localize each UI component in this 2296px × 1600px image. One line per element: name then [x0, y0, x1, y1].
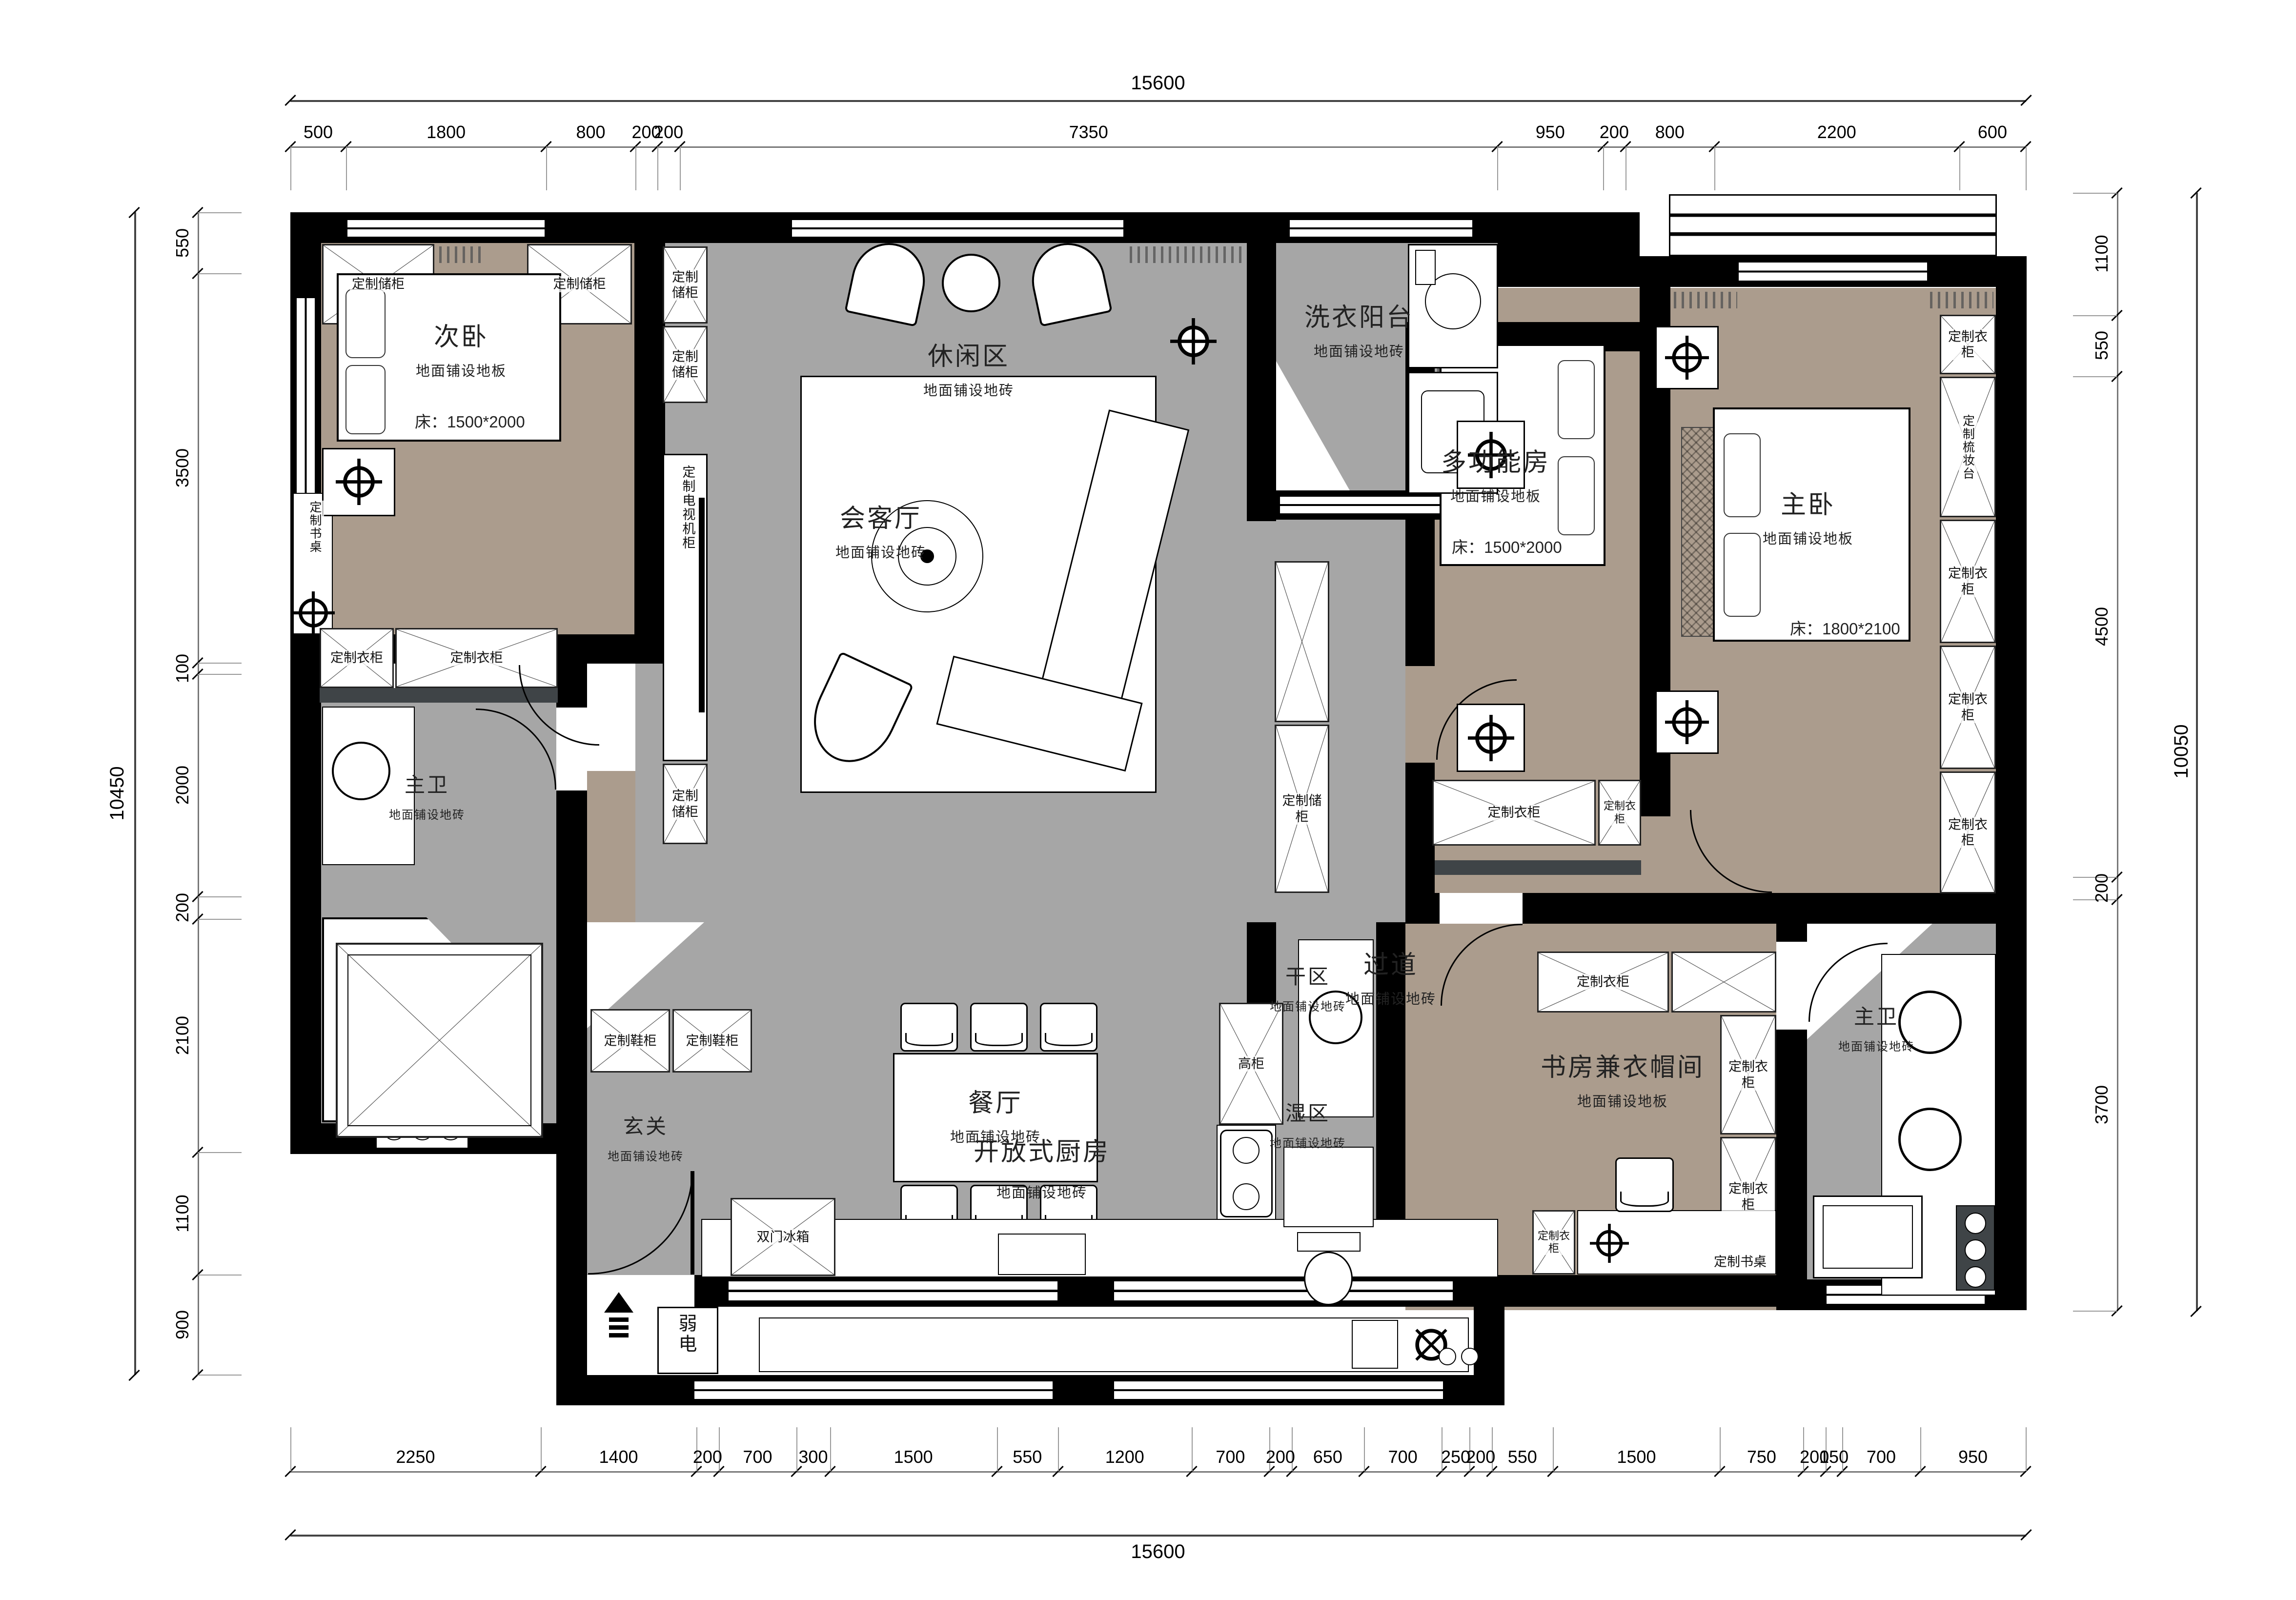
- cabinet-label: 定制鞋柜: [684, 1033, 741, 1049]
- cabinet-label: 定制衣柜: [1941, 691, 1994, 723]
- cabinet-label: 定制储柜: [551, 276, 608, 292]
- dim-total-line-left: [134, 212, 136, 1375]
- dining-chair: [970, 1003, 1028, 1052]
- dim-label: 800: [1655, 122, 1685, 142]
- wall: [1247, 212, 1276, 521]
- entry-arrow-icon: [604, 1292, 633, 1313]
- dim-label: 1200: [1105, 1447, 1144, 1467]
- dim-extension: [635, 146, 636, 190]
- dim-extension: [1920, 1427, 1921, 1471]
- bed-size-note: 床：1500*2000: [1452, 534, 1562, 558]
- crosshair-icon: [1665, 336, 1709, 380]
- cabinet-storage: 定制储柜: [663, 246, 708, 324]
- entry-arrow-bar: [609, 1333, 629, 1337]
- dim-label: 700: [1216, 1447, 1245, 1467]
- dim-extension: [1720, 1427, 1721, 1471]
- cabinet-shoe: 定制鞋柜: [590, 1009, 670, 1073]
- door-gap: [1776, 942, 1807, 1030]
- bathtub-inner: [1823, 1205, 1913, 1269]
- dim-extension: [997, 1427, 998, 1471]
- dim-label: 650: [1313, 1447, 1342, 1467]
- dim-label: 2100: [172, 1016, 193, 1055]
- dim-extension: [796, 1427, 797, 1471]
- crosshair-icon: [1170, 318, 1217, 365]
- dim-extension: [1714, 146, 1715, 190]
- door-gap: [1440, 893, 1523, 924]
- dim-label: 500: [304, 122, 333, 142]
- burner: [1965, 1213, 1986, 1234]
- dim-label: 200: [1466, 1447, 1495, 1467]
- dim-extension: [1625, 146, 1626, 190]
- toilet-tank: [1297, 1232, 1361, 1252]
- cabinet-label: 定制梳妆台: [1959, 414, 1977, 480]
- dim-label: 200: [1266, 1447, 1295, 1467]
- dim-label: 1100: [2092, 235, 2112, 273]
- bath-right-sink: [1898, 1108, 1962, 1171]
- dim-extension: [1603, 146, 1604, 190]
- room-label-weak-current: 弱电: [672, 1314, 699, 1355]
- dining-chair: [1040, 1003, 1097, 1052]
- room-label-dining: 餐厅 地面铺设地砖: [920, 1082, 1071, 1146]
- window: [295, 297, 316, 502]
- dim-label: 200: [2092, 873, 2112, 903]
- dim-label: 200: [654, 122, 683, 142]
- crosshair-glyph: [292, 591, 335, 634]
- cabinet-wardrobe: 定制衣柜: [1598, 780, 1641, 846]
- elevator-inner: [347, 954, 531, 1126]
- crosshair-glyph: [1468, 715, 1514, 761]
- dim-total-right: 10050: [2171, 724, 2193, 778]
- dim-label: 3500: [172, 448, 193, 487]
- dim-extension: [830, 1427, 831, 1471]
- dim-label: 2250: [396, 1447, 435, 1467]
- dim-line: [290, 146, 2026, 148]
- dim-label: 950: [1536, 122, 1565, 142]
- dim-label: 750: [1747, 1447, 1776, 1467]
- cabinet-label: 定制电视机柜: [678, 465, 697, 550]
- dim-extension: [1497, 146, 1498, 190]
- cabinet-label: 定制衣柜: [448, 650, 505, 666]
- dim-extension: [2073, 315, 2117, 316]
- floor-plan-page: { "dimensions": { "top": {"total": "1560…: [0, 0, 2296, 1600]
- cabinet-label: 双门冰箱: [755, 1229, 812, 1245]
- radiator: [1674, 292, 1737, 308]
- room-label-multi: 多功能房 地面铺设地板: [1405, 442, 1586, 506]
- dim-extension: [290, 146, 291, 190]
- dim-extension: [2073, 376, 2117, 377]
- cabinet-shoe: 定制鞋柜: [672, 1009, 752, 1073]
- dim-label: 2000: [172, 766, 193, 805]
- tv-screen: [699, 498, 705, 712]
- side-table: [942, 254, 1000, 312]
- desk-chair: [1615, 1157, 1674, 1212]
- dim-extension: [198, 1375, 242, 1376]
- cabinet-label: 定制储柜: [664, 269, 706, 301]
- dim-label: 900: [172, 1310, 193, 1339]
- kitchen-sink-cabinet: [998, 1234, 1086, 1275]
- cabinet-label: 定制衣柜: [1575, 974, 1631, 990]
- dim-extension: [2026, 146, 2027, 190]
- sill: [320, 688, 558, 703]
- burner: [1965, 1266, 1986, 1288]
- dim-label: 550: [1508, 1447, 1537, 1467]
- dim-extension: [541, 1427, 542, 1471]
- cabinet-label: 定制衣柜: [1941, 817, 1994, 849]
- window: [346, 219, 546, 238]
- bed-size-note: 床：1500*2000: [415, 409, 525, 432]
- cabinet-storage: [1275, 561, 1329, 722]
- entry-arrow-bar: [609, 1325, 629, 1330]
- dim-label: 7350: [1069, 122, 1108, 142]
- cabinet-wardrobe: 定制衣柜: [1940, 771, 1996, 893]
- cabinet-wardrobe: 定制衣柜: [1940, 646, 1996, 769]
- burner: [1233, 1183, 1260, 1210]
- entry-arrow-bar: [609, 1317, 629, 1322]
- burner: [1233, 1137, 1260, 1164]
- dim-label: 4500: [2092, 607, 2112, 646]
- wall: [556, 1154, 587, 1405]
- dim-label: 150: [1819, 1447, 1849, 1467]
- crosshair-icon: [1665, 700, 1709, 744]
- shower-tray: [1283, 1147, 1374, 1227]
- wall: [1498, 212, 1640, 287]
- dim-label: 800: [576, 122, 605, 142]
- room-label-master: 主卧 地面铺设地板: [1718, 484, 1898, 548]
- dim-label: 200: [172, 893, 193, 922]
- dim-extension: [1553, 1427, 1554, 1471]
- dim-label: 100: [172, 654, 193, 683]
- faucet-dot: [1439, 1348, 1456, 1365]
- wall: [634, 212, 665, 664]
- dim-label: 300: [798, 1447, 828, 1467]
- balcony-cabinet: [1352, 1320, 1398, 1369]
- room-label-wet-zone: 湿区 地面铺设地砖: [1259, 1097, 1357, 1151]
- room-label-leisure: 休闲区 地面铺设地砖: [883, 336, 1054, 400]
- crosshair-icon: [1468, 715, 1514, 761]
- dim-extension: [198, 663, 242, 664]
- dim-label: 700: [1388, 1447, 1418, 1467]
- dim-label: 700: [743, 1447, 772, 1467]
- room-label-dry-zone: 干区 地面铺设地砖: [1259, 960, 1357, 1014]
- dim-label: 600: [1978, 122, 2007, 142]
- window: [1288, 219, 1474, 238]
- dim-total-line-top: [290, 100, 2026, 102]
- cabinet-label: 高柜: [1236, 1056, 1266, 1072]
- room-label-living: 会客厅 地面铺设地砖: [793, 498, 969, 562]
- crosshair-glyph: [1590, 1224, 1629, 1263]
- dim-extension: [2073, 1311, 2117, 1312]
- window: [727, 1280, 1059, 1302]
- cabinet-wardrobe: 定制衣柜: [1532, 1210, 1575, 1275]
- dim-extension: [198, 273, 242, 274]
- dim-line: [290, 1471, 2026, 1473]
- room-label-bath-right: 主卫 地面铺设地砖: [1806, 1000, 1947, 1054]
- pillow: [1558, 360, 1595, 439]
- cabinet-label: 定制衣柜: [1941, 329, 1994, 361]
- cabinet-storage: 定制储柜: [1275, 725, 1329, 893]
- crosshair-icon: [292, 591, 335, 634]
- cabinet-wardrobe: 定制衣柜: [1940, 315, 1996, 374]
- window: [693, 1380, 1054, 1400]
- dim-extension: [1192, 1427, 1193, 1471]
- dim-label: 1400: [599, 1447, 638, 1467]
- door-leaf: [691, 1171, 694, 1275]
- dim-total-left: 10450: [106, 766, 128, 820]
- radiator: [1930, 292, 1993, 308]
- bed-size-note: 床：1800*2100: [1790, 616, 1900, 639]
- sill: [1435, 860, 1641, 875]
- crosshair-glyph: [1170, 318, 1217, 365]
- cabinet-label: 定制衣柜: [1600, 800, 1640, 826]
- cabinet-label: 定制衣柜: [1941, 566, 1994, 597]
- dim-label: 950: [1958, 1447, 1988, 1467]
- cabinet-label: 定制书桌: [305, 501, 324, 553]
- x-cross-icon: [1276, 563, 1328, 721]
- window: [1113, 1380, 1444, 1400]
- dim-total-top: 15600: [1131, 72, 1185, 94]
- dim-extension: [198, 919, 242, 920]
- dim-extension: [290, 1427, 291, 1471]
- crosshair-glyph: [336, 459, 382, 505]
- dim-extension: [198, 896, 242, 897]
- dim-total-line-bottom: [290, 1535, 2026, 1537]
- dim-extension: [1058, 1427, 1059, 1471]
- dim-extension: [346, 146, 347, 190]
- dim-extension: [1959, 146, 1960, 190]
- cabinet-label: 定制衣柜: [328, 650, 385, 666]
- toilet-bowl: [1304, 1252, 1353, 1305]
- radiator: [1130, 246, 1244, 263]
- cabinet: [1671, 952, 1776, 1013]
- dim-extension: [680, 146, 681, 190]
- cabinet-storage: 定制储柜: [663, 764, 708, 844]
- cabinet-label: 定制储柜: [350, 276, 406, 292]
- dim-label: 1100: [172, 1195, 193, 1232]
- dim-label: 2200: [1817, 122, 1856, 142]
- cabinet-label: 定制书桌: [1712, 1254, 1768, 1270]
- crosshair-icon: [1590, 1224, 1629, 1263]
- cabinet-label: 定制衣柜: [1486, 805, 1543, 820]
- burner: [1965, 1239, 1986, 1261]
- room-label-bath-left: 主卫 地面铺设地砖: [359, 769, 495, 822]
- dim-line: [198, 212, 199, 1375]
- cabinet-wardrobe: 定制衣柜: [1940, 520, 1996, 643]
- dim-label: 550: [1013, 1447, 1042, 1467]
- cabinet-storage: 定制储柜: [663, 326, 708, 403]
- crosshair-glyph: [1665, 700, 1709, 744]
- dim-extension: [198, 212, 242, 213]
- dim-total-line-right: [2196, 193, 2198, 1311]
- wall: [1996, 256, 2027, 1310]
- dim-label: 1500: [894, 1447, 933, 1467]
- dim-label: 1800: [427, 122, 466, 142]
- dim-label: 550: [172, 228, 193, 258]
- cabinet-label: 定制储柜: [664, 788, 706, 820]
- bay-window: [1669, 194, 1997, 256]
- dim-total-bottom: 15600: [1131, 1541, 1185, 1563]
- dim-extension: [198, 1152, 242, 1153]
- dim-extension: [2026, 1427, 2027, 1471]
- cabinet-label: 定制衣柜: [1534, 1230, 1574, 1256]
- room-label-entry: 玄关 地面铺设地砖: [575, 1110, 716, 1164]
- dim-extension: [198, 1275, 242, 1276]
- cabinet-label: 定制鞋柜: [602, 1033, 659, 1049]
- dining-chair: [900, 1003, 958, 1052]
- fridge: 双门冰箱: [731, 1198, 835, 1276]
- room-label-laundry: 洗衣阳台 地面铺设地砖: [1264, 297, 1454, 361]
- cabinet-wardrobe: 定制衣柜: [320, 628, 394, 688]
- window: [1113, 1280, 1454, 1302]
- dim-label: 200: [693, 1447, 722, 1467]
- dim-extension: [1364, 1427, 1365, 1471]
- room-label-secondary-bedroom: 次卧 地面铺设地板: [376, 316, 547, 380]
- crosshair-icon: [336, 459, 382, 505]
- cabinet-dresser: 定制梳妆台: [1940, 377, 1996, 517]
- crosshair-glyph: [1665, 336, 1709, 380]
- dim-label: 550: [2092, 331, 2112, 360]
- x-cross-icon: [1673, 953, 1775, 1011]
- window: [791, 219, 1125, 238]
- washer-panel: [1415, 250, 1436, 285]
- room-label-study: 书房兼衣帽间 地面铺设地板: [1503, 1047, 1742, 1111]
- dim-extension: [546, 146, 547, 190]
- dim-label: 3700: [2092, 1085, 2112, 1124]
- door-gap: [587, 1275, 694, 1307]
- dim-label: 200: [1600, 122, 1629, 142]
- wall: [1405, 763, 1435, 894]
- dim-extension: [198, 674, 242, 675]
- dim-label: 1500: [1617, 1447, 1656, 1467]
- cabinet-wardrobe: 定制衣柜: [1432, 780, 1596, 846]
- window: [1737, 261, 1929, 282]
- cabinet-wardrobe: 定制衣柜: [1537, 952, 1669, 1013]
- faucet-dot: [1461, 1348, 1479, 1365]
- cabinet-label: 定制储柜: [1276, 793, 1328, 825]
- dim-extension: [657, 146, 658, 190]
- dim-label: 700: [1867, 1447, 1896, 1467]
- cabinet-label: 定制衣柜: [1722, 1181, 1775, 1213]
- cabinet-label: 定制储柜: [664, 349, 706, 381]
- dim-line: [2117, 193, 2118, 1311]
- dim-extension: [2073, 193, 2117, 194]
